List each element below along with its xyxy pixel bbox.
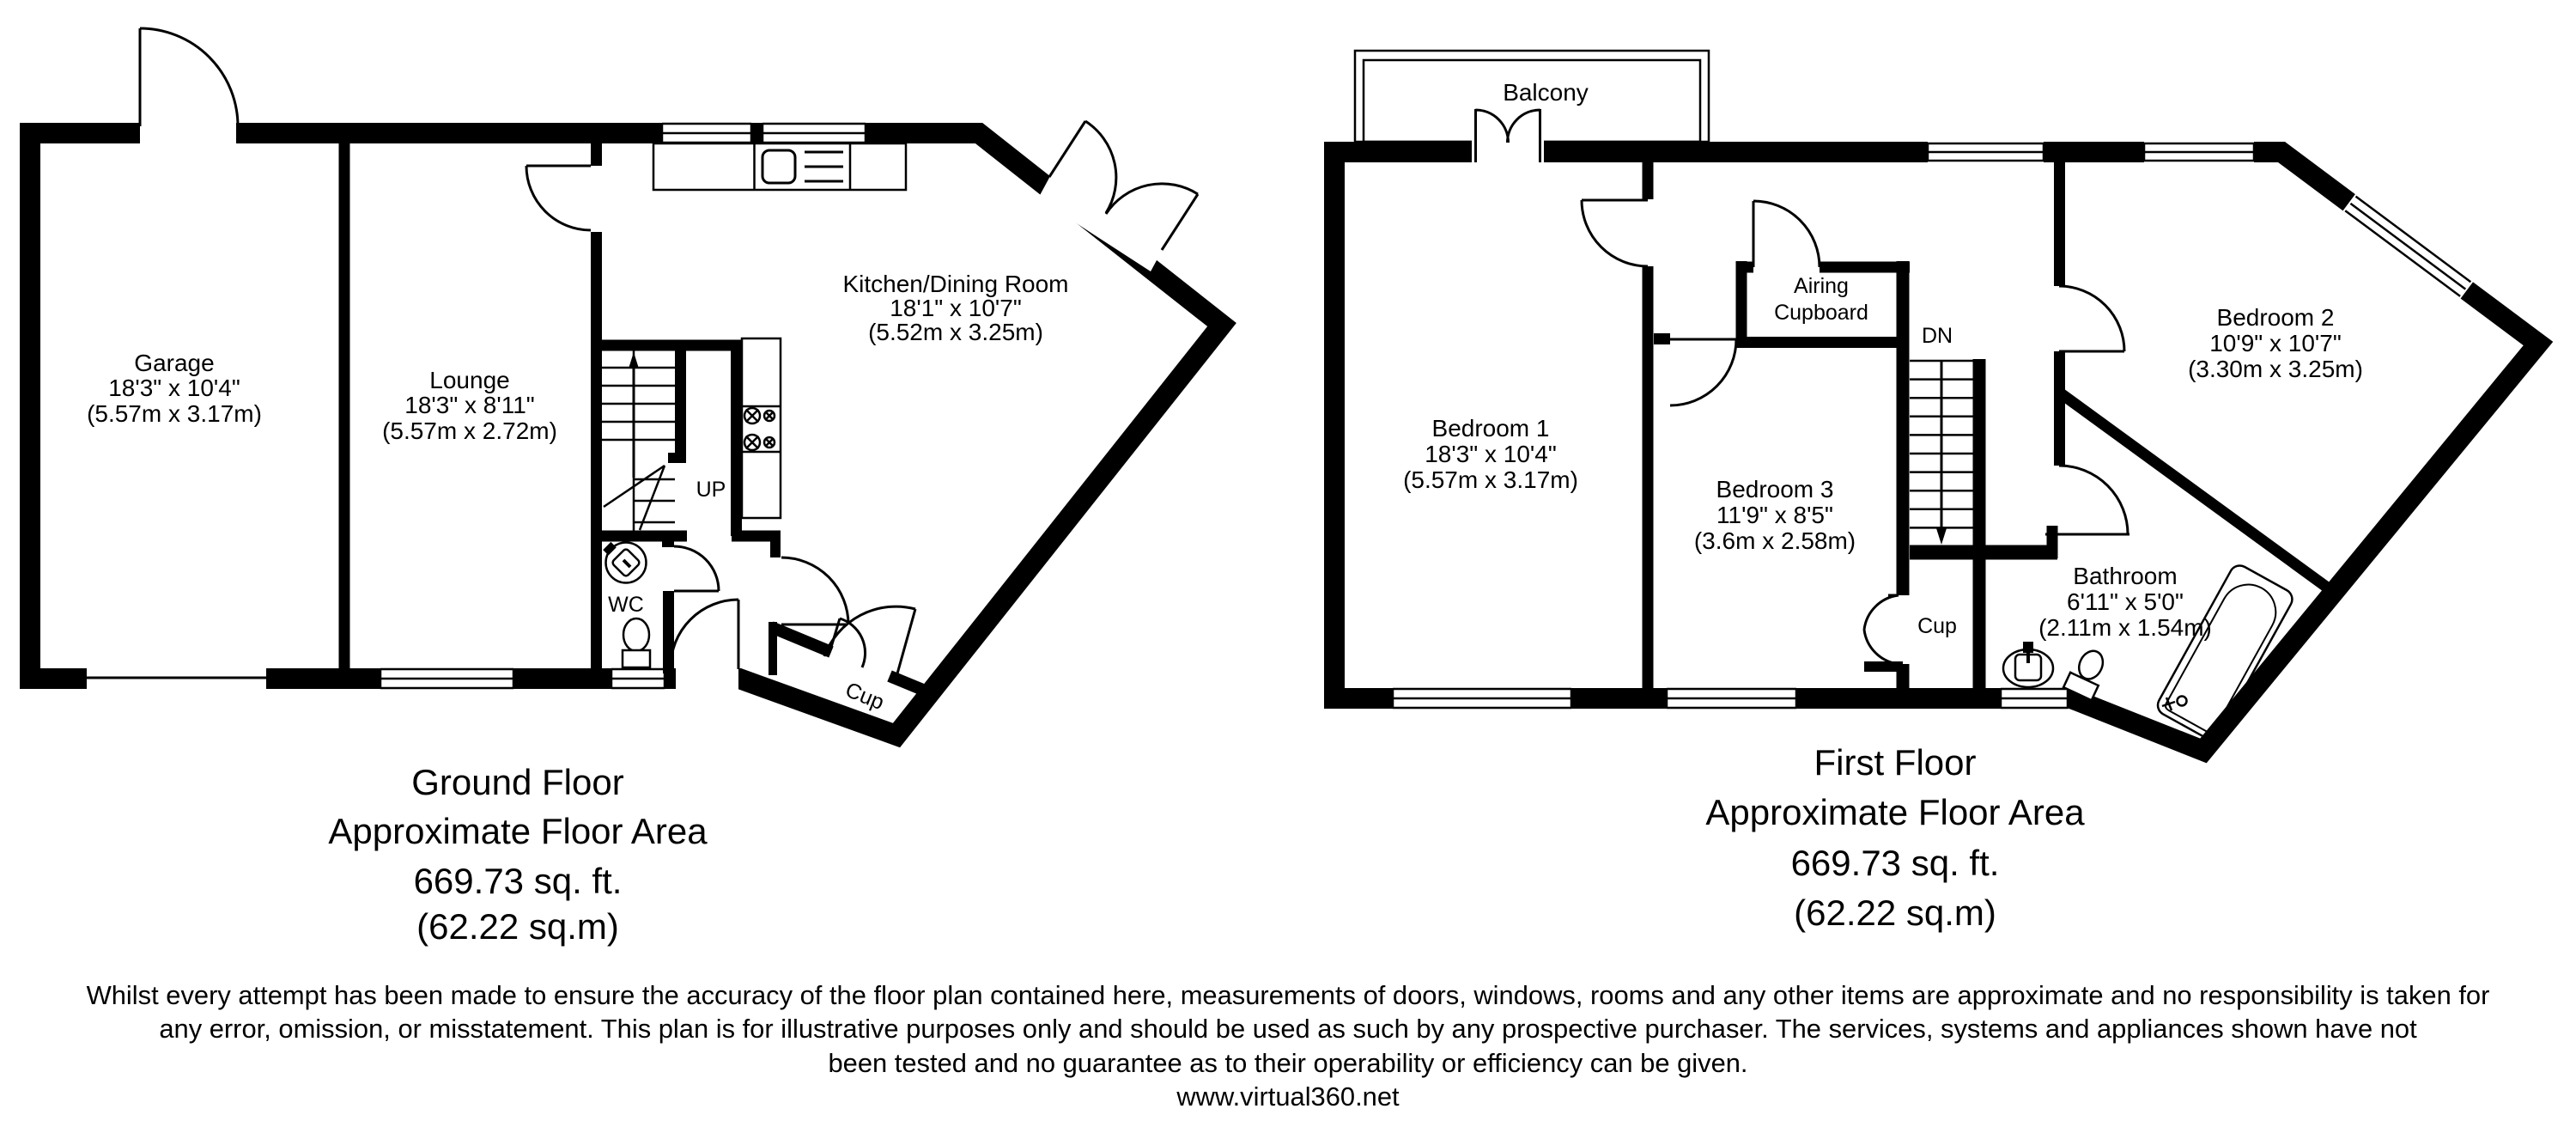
svg-text:(62.22 sq.m): (62.22 sq.m) <box>1794 892 1996 933</box>
svg-text:UP: UP <box>696 478 726 502</box>
svg-text:DN: DN <box>1922 324 1953 348</box>
svg-text:Whilst every attempt has been: Whilst every attempt has been made to en… <box>87 980 2490 1010</box>
svg-text:Cupboard: Cupboard <box>1774 301 1868 325</box>
svg-text:11'9" x 8'5": 11'9" x 8'5" <box>1716 502 1833 528</box>
svg-text:Bedroom 2: Bedroom 2 <box>2217 304 2335 331</box>
svg-text:Bedroom 3: Bedroom 3 <box>1716 476 1834 503</box>
svg-text:Airing: Airing <box>1794 274 1849 298</box>
svg-text:18'3" x 10'4": 18'3" x 10'4" <box>108 375 240 401</box>
svg-text:Approximate Floor Area: Approximate Floor Area <box>1705 792 2085 832</box>
svg-text:Bedroom 1: Bedroom 1 <box>1432 415 1550 442</box>
svg-text:WC: WC <box>608 593 644 617</box>
svg-text:www.virtual360.net: www.virtual360.net <box>1176 1081 1400 1112</box>
svg-text:18'3" x 8'11": 18'3" x 8'11" <box>404 392 534 418</box>
svg-text:First Floor: First Floor <box>1814 742 1977 783</box>
svg-text:10'9" x 10'7": 10'9" x 10'7" <box>2209 330 2342 356</box>
svg-text:Kitchen/Dining Room: Kitchen/Dining Room <box>842 271 1068 297</box>
svg-text:Ground Floor: Ground Floor <box>411 762 623 802</box>
svg-text:(3.6m x 2.58m): (3.6m x 2.58m) <box>1694 527 1856 554</box>
svg-text:Lounge: Lounge <box>429 367 509 393</box>
svg-text:18'3" x 10'4": 18'3" x 10'4" <box>1425 441 1557 467</box>
svg-text:Approximate Floor Area: Approximate Floor Area <box>328 811 708 851</box>
svg-text:any error, omission, or missta: any error, omission, or misstatement. Th… <box>159 1014 2417 1044</box>
svg-text:6'11" x 5'0": 6'11" x 5'0" <box>2067 588 2184 615</box>
svg-text:(5.57m x 2.72m): (5.57m x 2.72m) <box>382 417 557 444</box>
svg-text:Garage: Garage <box>134 350 214 376</box>
svg-text:been tested and no guarantee a: been tested and no guarantee as to their… <box>828 1048 1747 1078</box>
svg-text:(5.52m x 3.25m): (5.52m x 3.25m) <box>868 319 1043 345</box>
svg-text:669.73 sq. ft.: 669.73 sq. ft. <box>414 861 623 901</box>
svg-text:669.73 sq. ft.: 669.73 sq. ft. <box>1791 843 2000 883</box>
svg-text:(3.30m x 3.25m): (3.30m x 3.25m) <box>2188 356 2363 382</box>
svg-text:(5.57m x 3.17m): (5.57m x 3.17m) <box>87 400 262 427</box>
svg-text:Bathroom: Bathroom <box>2073 563 2177 589</box>
svg-text:(62.22 sq.m): (62.22 sq.m) <box>416 906 619 947</box>
svg-text:(2.11m x 1.54m): (2.11m x 1.54m) <box>2038 614 2212 641</box>
svg-text:Balcony: Balcony <box>1503 79 1589 106</box>
svg-text:Cup: Cup <box>1917 614 1957 638</box>
svg-text:18'1" x 10'7": 18'1" x 10'7" <box>890 295 1022 321</box>
svg-text:(5.57m x 3.17m): (5.57m x 3.17m) <box>1403 466 1578 493</box>
